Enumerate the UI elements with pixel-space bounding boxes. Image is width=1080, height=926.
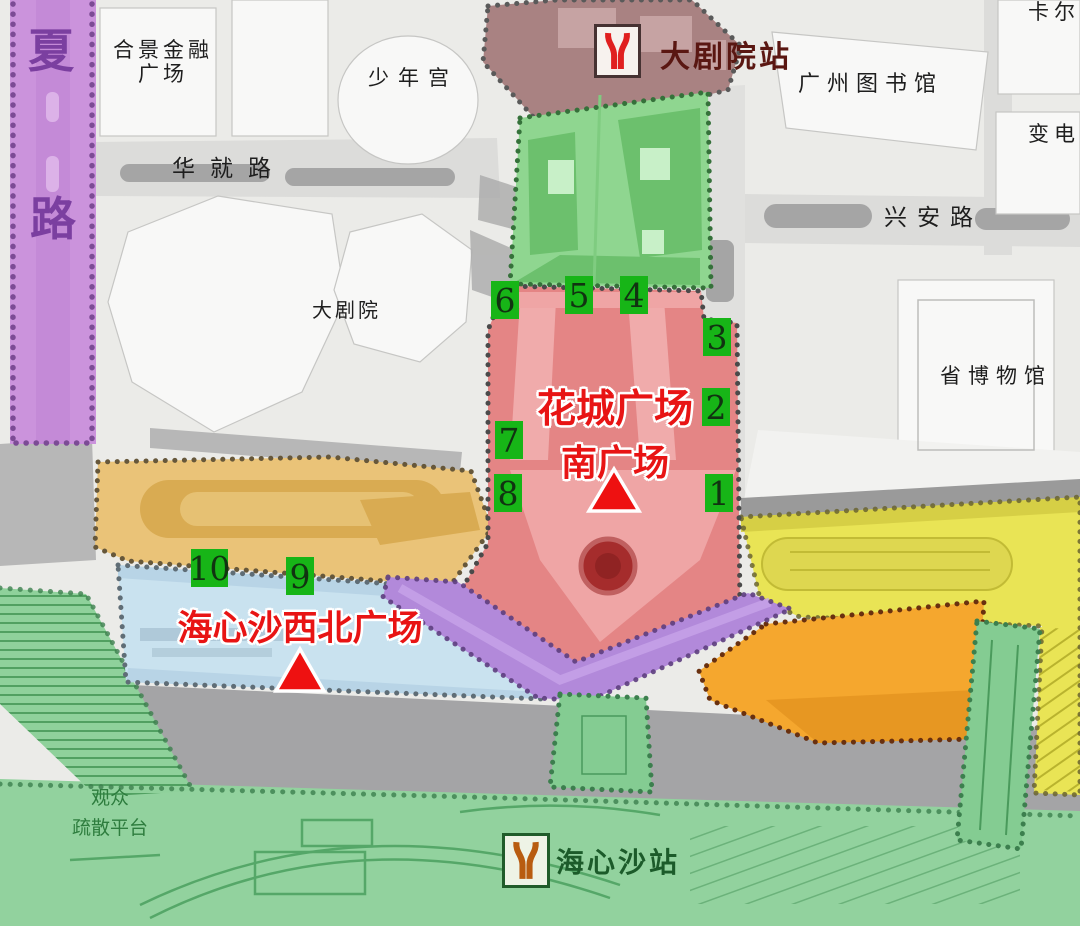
youth-palace-label: 少年宫 (368, 66, 458, 90)
hejing-plaza-label-line2: 广场 (96, 62, 230, 86)
haixinsha-nw-plaza-title: 海心沙西北广场 (168, 600, 432, 651)
metro-logo-icon (505, 836, 547, 885)
guangzhou-library-label: 广州图书馆 (798, 71, 943, 96)
zone-green-north-lawn (510, 92, 711, 288)
haixinsha-station-badge (502, 833, 550, 888)
marker-9: 9 (286, 557, 314, 595)
marker-2: 2 (702, 388, 730, 426)
site-plan-map: 大剧院站 海心沙站 夏 路 合景金融 广场 少年宫 华就路 广州图书馆 卡尔 变… (0, 0, 1080, 926)
huacheng-south-plaza-title-line2: 南广场 (495, 434, 735, 486)
hejing-plaza-label: 合景金融 广场 (96, 38, 230, 86)
substation-label: 变电 (1028, 122, 1080, 146)
xingan-road-label: 兴安路 (884, 205, 983, 231)
marker-1: 1 (705, 474, 733, 512)
marker-3: 3 (703, 318, 731, 356)
evacuation-platform-label: 观众 疏散平台 (54, 784, 166, 845)
evacuation-platform-label-line1: 观众 (54, 784, 166, 814)
hejing-plaza-label-line1: 合景金融 (96, 38, 230, 62)
grand-theatre-label: 大剧院 (312, 300, 381, 323)
marker-10: 10 (191, 549, 228, 587)
metro-logo-icon (597, 27, 638, 75)
marker-7: 7 (495, 421, 523, 459)
huacheng-south-plaza-title: 花城广场 南广场 (495, 378, 735, 486)
grand-theatre-station-badge (594, 24, 641, 78)
huacheng-south-plaza-title-line1: 花城广场 (495, 378, 735, 434)
marker-6: 6 (491, 281, 519, 319)
haixinsha-station-label: 海心沙站 (556, 841, 680, 881)
marker-4: 4 (620, 276, 648, 314)
evacuation-platform-label-line2: 疏散平台 (54, 814, 166, 844)
huajiu-road-label: 华就路 (172, 156, 286, 182)
grand-theatre-station-label: 大剧院站 (660, 32, 792, 76)
provincial-museum-label: 省博物馆 (940, 364, 1052, 388)
huaxia-road-label-char1: 夏 (28, 26, 74, 79)
marker-5: 5 (565, 276, 593, 314)
karl-block-label: 卡尔 (1028, 0, 1080, 24)
huaxia-road-label-char2: 路 (30, 194, 76, 247)
building-youth-palace (338, 36, 478, 164)
marker-8: 8 (494, 474, 522, 512)
